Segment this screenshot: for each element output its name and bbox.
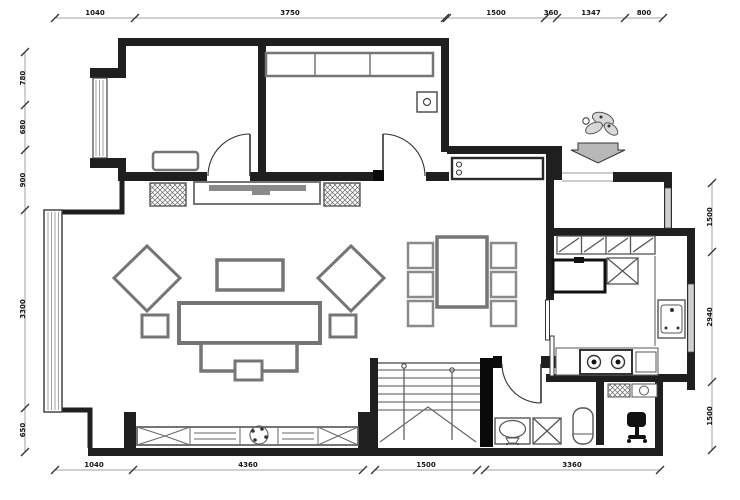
entry-down-arrow-icon xyxy=(571,143,625,163)
wall-bedroom-south-3 xyxy=(426,172,449,181)
dim-label: 3750 xyxy=(280,9,300,17)
tv-base xyxy=(252,191,270,195)
floor-plan-drawing: 1040 3750 1500 360 1347 800 1040 4360 15… xyxy=(0,0,740,500)
door-jamb xyxy=(373,170,384,181)
entrance-marker xyxy=(571,110,625,163)
dim-label: 3360 xyxy=(562,461,582,469)
wall-kitchen-north xyxy=(546,228,695,236)
wall-stair-right-black xyxy=(480,358,493,447)
entry-hall xyxy=(452,158,543,179)
toilet xyxy=(573,408,593,444)
dim-label: 1500 xyxy=(486,9,506,17)
counter-box xyxy=(636,352,656,372)
bedroom-2-furniture xyxy=(266,53,437,112)
lounge-chair-left xyxy=(114,246,180,311)
shower-box xyxy=(533,418,561,444)
refrigerator xyxy=(553,260,605,292)
wall-bedroom-south-2 xyxy=(250,172,383,181)
lounge-chair-right xyxy=(318,246,384,311)
wall-top xyxy=(118,38,449,46)
wall-bedroom-south-1 xyxy=(118,172,207,181)
dim-label: 650 xyxy=(19,423,27,438)
staircase xyxy=(378,363,480,442)
dim-label: 1347 xyxy=(581,9,601,17)
upper-cabinets xyxy=(557,236,655,254)
wall-stub-right xyxy=(358,412,372,450)
dining-chair xyxy=(408,243,433,268)
gas-stove xyxy=(580,350,632,374)
corner-unit xyxy=(417,92,437,112)
wall-entry-east xyxy=(613,172,672,182)
coffee-table xyxy=(217,260,283,290)
wash-basin xyxy=(495,418,530,445)
flower-icon xyxy=(583,110,620,138)
dining-table xyxy=(437,237,487,307)
dining-chair xyxy=(491,272,516,297)
office-chair-icon xyxy=(627,412,647,443)
dim-label: 800 xyxy=(637,9,652,17)
wall-entry-corner xyxy=(554,146,562,180)
living-room-furniture xyxy=(114,182,384,380)
dresser xyxy=(153,152,198,170)
entry-threshold xyxy=(562,173,613,181)
dining-set xyxy=(408,237,516,326)
wall-bottom xyxy=(88,448,663,456)
dimension-chain-bottom: 1040 4360 1500 3360 xyxy=(51,461,664,474)
flue-duct xyxy=(607,258,638,284)
wall-bay-bottom xyxy=(90,158,126,168)
door-bedroom2 xyxy=(373,134,425,181)
bay-window-living xyxy=(44,210,62,412)
dim-label: 1040 xyxy=(85,9,105,17)
dimension-chain-right: 1500 2940 1500 xyxy=(706,179,716,454)
wall-bath-jamb xyxy=(493,356,502,368)
shoe-bench xyxy=(452,158,543,179)
small-table xyxy=(235,361,262,380)
bottom-cabinet xyxy=(137,426,358,445)
door-bedroom1 xyxy=(208,134,250,176)
dim-label: 2940 xyxy=(706,307,714,327)
sofa xyxy=(179,303,320,343)
wall-bedroom2-right xyxy=(441,46,449,152)
plant-box-left xyxy=(150,183,186,206)
sink xyxy=(658,300,685,338)
dim-label: 1040 xyxy=(84,461,104,469)
floor-plan-canvas: 1040 3750 1500 360 1347 800 1040 4360 15… xyxy=(0,0,740,500)
dim-label: 1500 xyxy=(706,207,714,227)
wall-entry-north xyxy=(447,146,562,154)
dining-chair xyxy=(408,301,433,326)
dining-chair xyxy=(408,272,433,297)
dining-chair xyxy=(491,243,516,268)
wall-bay-top xyxy=(90,68,126,78)
dining-chair xyxy=(491,301,516,326)
dim-label: 4360 xyxy=(238,461,258,469)
dim-label: 900 xyxy=(19,173,27,188)
dim-label: 780 xyxy=(19,71,27,86)
refrigerator-handle xyxy=(574,257,584,263)
laundry-cabinet xyxy=(608,384,630,397)
dim-label: 1500 xyxy=(706,406,714,426)
dimension-chain-left: 780 680 900 3300 650 xyxy=(19,48,29,456)
bedroom-1-furniture xyxy=(153,152,198,170)
bay-window-bedroom1 xyxy=(93,78,107,158)
window-kitchen-right xyxy=(688,284,694,352)
wall-living-topleft xyxy=(62,176,122,212)
dimension-chain-top: 1040 3750 1500 360 1347 800 xyxy=(51,9,667,22)
dim-label: 3300 xyxy=(19,299,27,319)
dim-label: 680 xyxy=(19,120,27,135)
side-table-left xyxy=(142,315,168,337)
wall-stub-left xyxy=(124,412,136,450)
dim-label: 1500 xyxy=(416,461,436,469)
window-hall-right xyxy=(665,188,671,228)
dim-label: 360 xyxy=(544,9,559,17)
plant-box-right xyxy=(324,183,360,206)
bathroom-fixtures xyxy=(495,408,593,445)
wardrobe xyxy=(266,53,433,76)
wall-bath-east xyxy=(596,368,604,445)
wall-living-botleft xyxy=(62,410,90,448)
stair-break-line xyxy=(380,407,476,442)
kitchen xyxy=(553,236,685,375)
side-table-right xyxy=(330,315,356,337)
door-bathroom xyxy=(502,364,541,403)
tv xyxy=(209,185,306,191)
se-room xyxy=(608,384,657,443)
